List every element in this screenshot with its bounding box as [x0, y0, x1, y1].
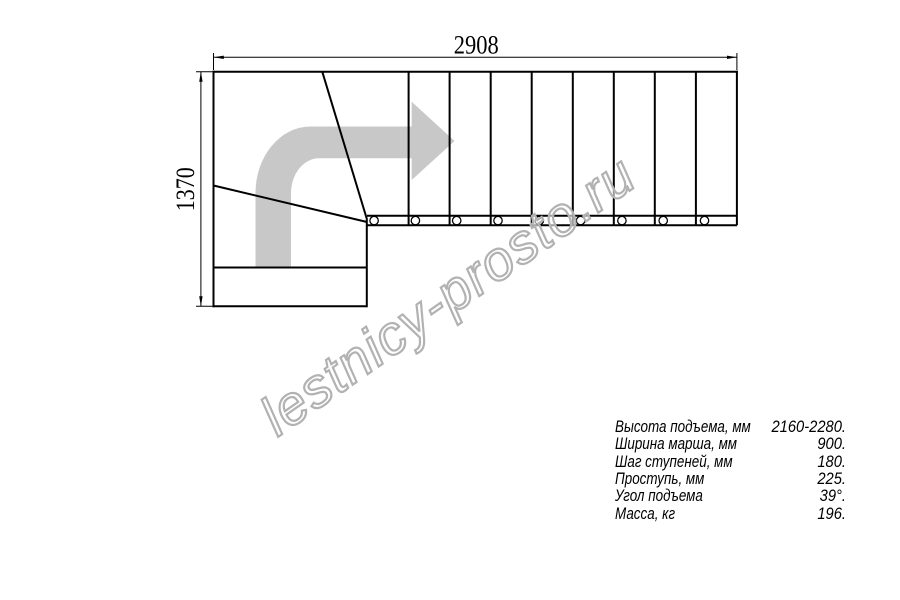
svg-text:1370: 1370 [170, 167, 200, 211]
svg-text:2908: 2908 [454, 30, 499, 60]
